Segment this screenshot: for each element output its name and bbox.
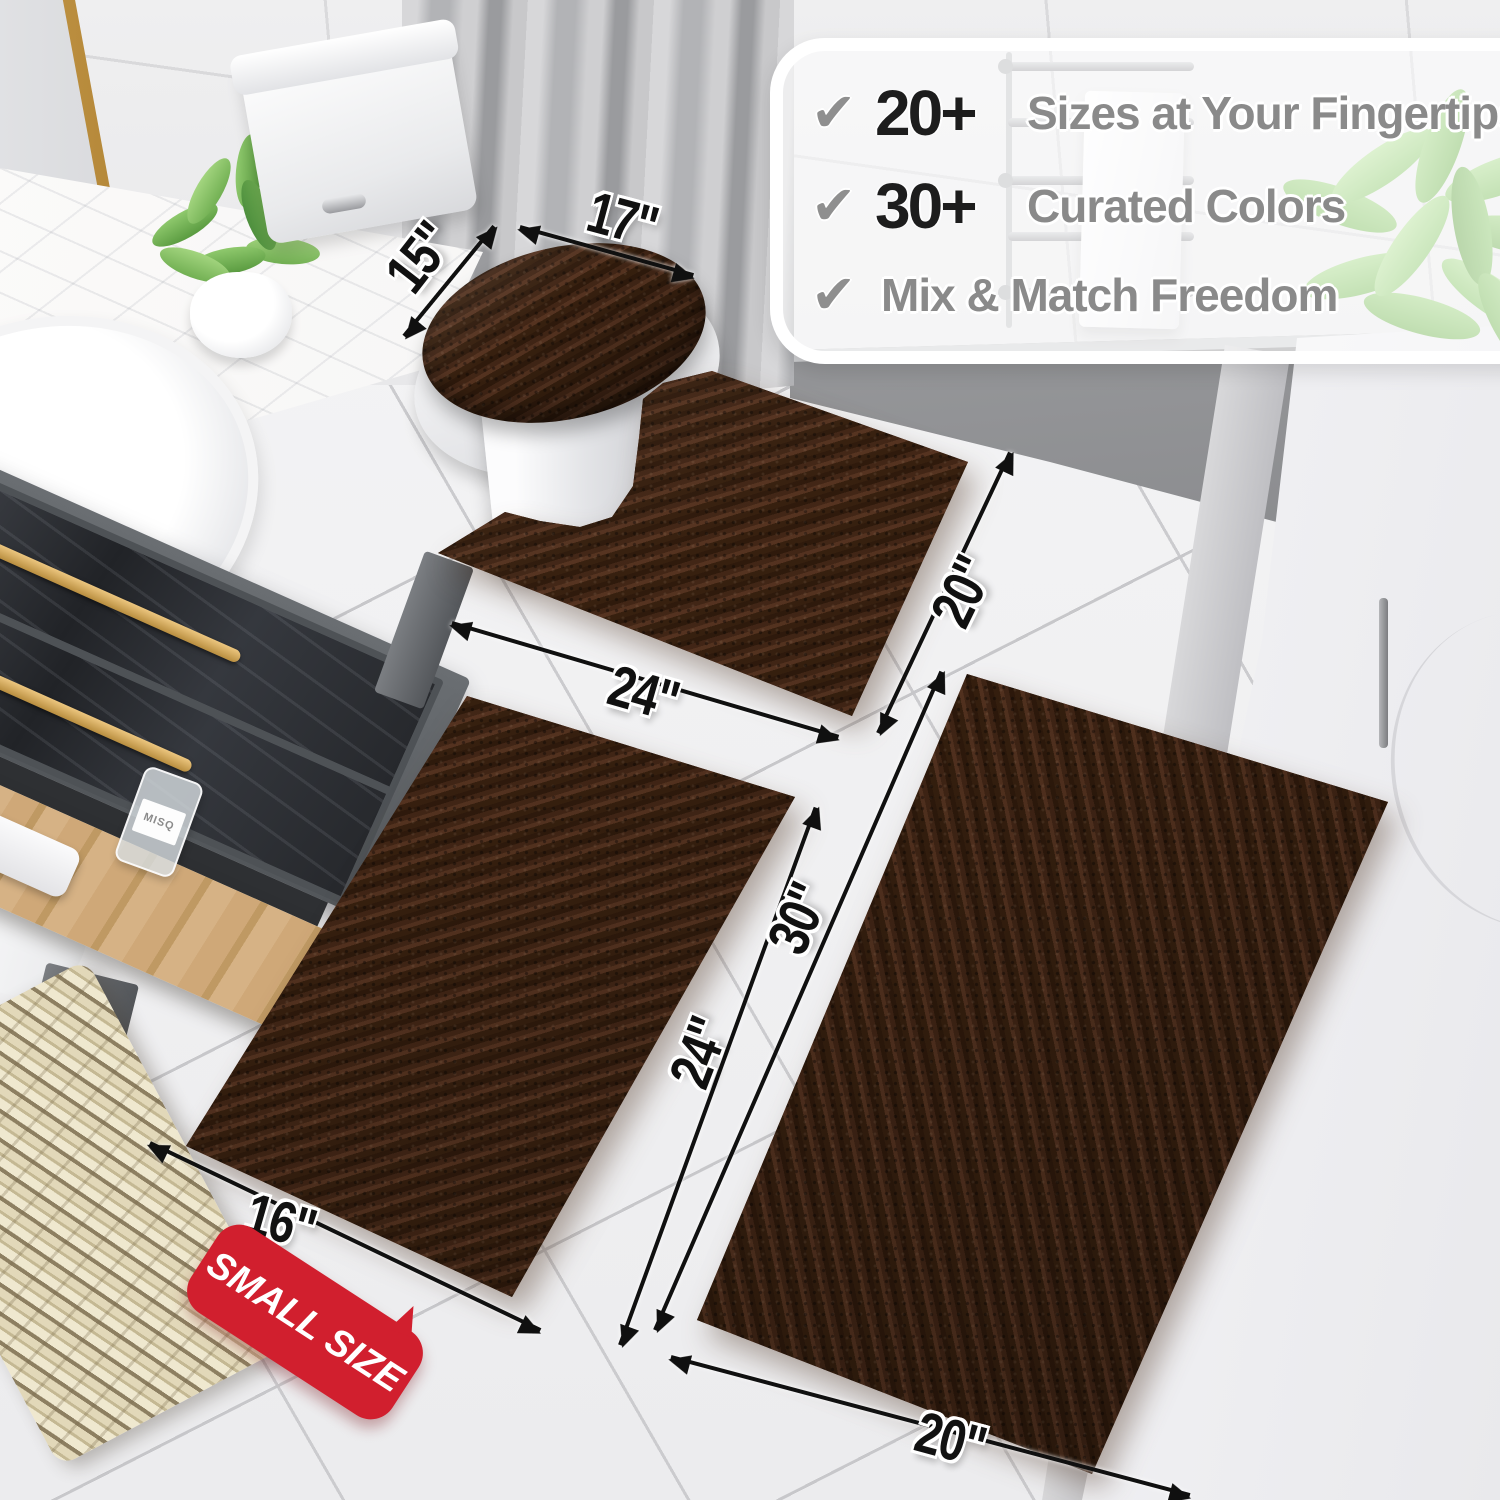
feature-card: ✔ 20+ Sizes at Your Fingertips ✔ 30+ Cur… [770, 38, 1500, 364]
feature-number: 30+ [875, 174, 993, 238]
feature-row: ✔ Mix & Match Freedom [811, 268, 1500, 322]
feature-number: 20+ [875, 81, 993, 145]
check-icon: ✔ [811, 179, 875, 233]
check-icon: ✔ [811, 268, 875, 322]
feature-label: Sizes at Your Fingertips [1027, 90, 1500, 136]
feature-row: ✔ 20+ Sizes at Your Fingertips [811, 81, 1500, 145]
feature-label: Mix & Match Freedom [881, 272, 1337, 318]
feature-row: ✔ 30+ Curated Colors [811, 174, 1500, 238]
feature-label: Curated Colors [1027, 183, 1345, 229]
check-icon: ✔ [811, 86, 875, 140]
product-photo: MISQ 15" 17" 24" 20" 30" 24" 16" 20" ✔ 2… [0, 0, 1500, 1500]
